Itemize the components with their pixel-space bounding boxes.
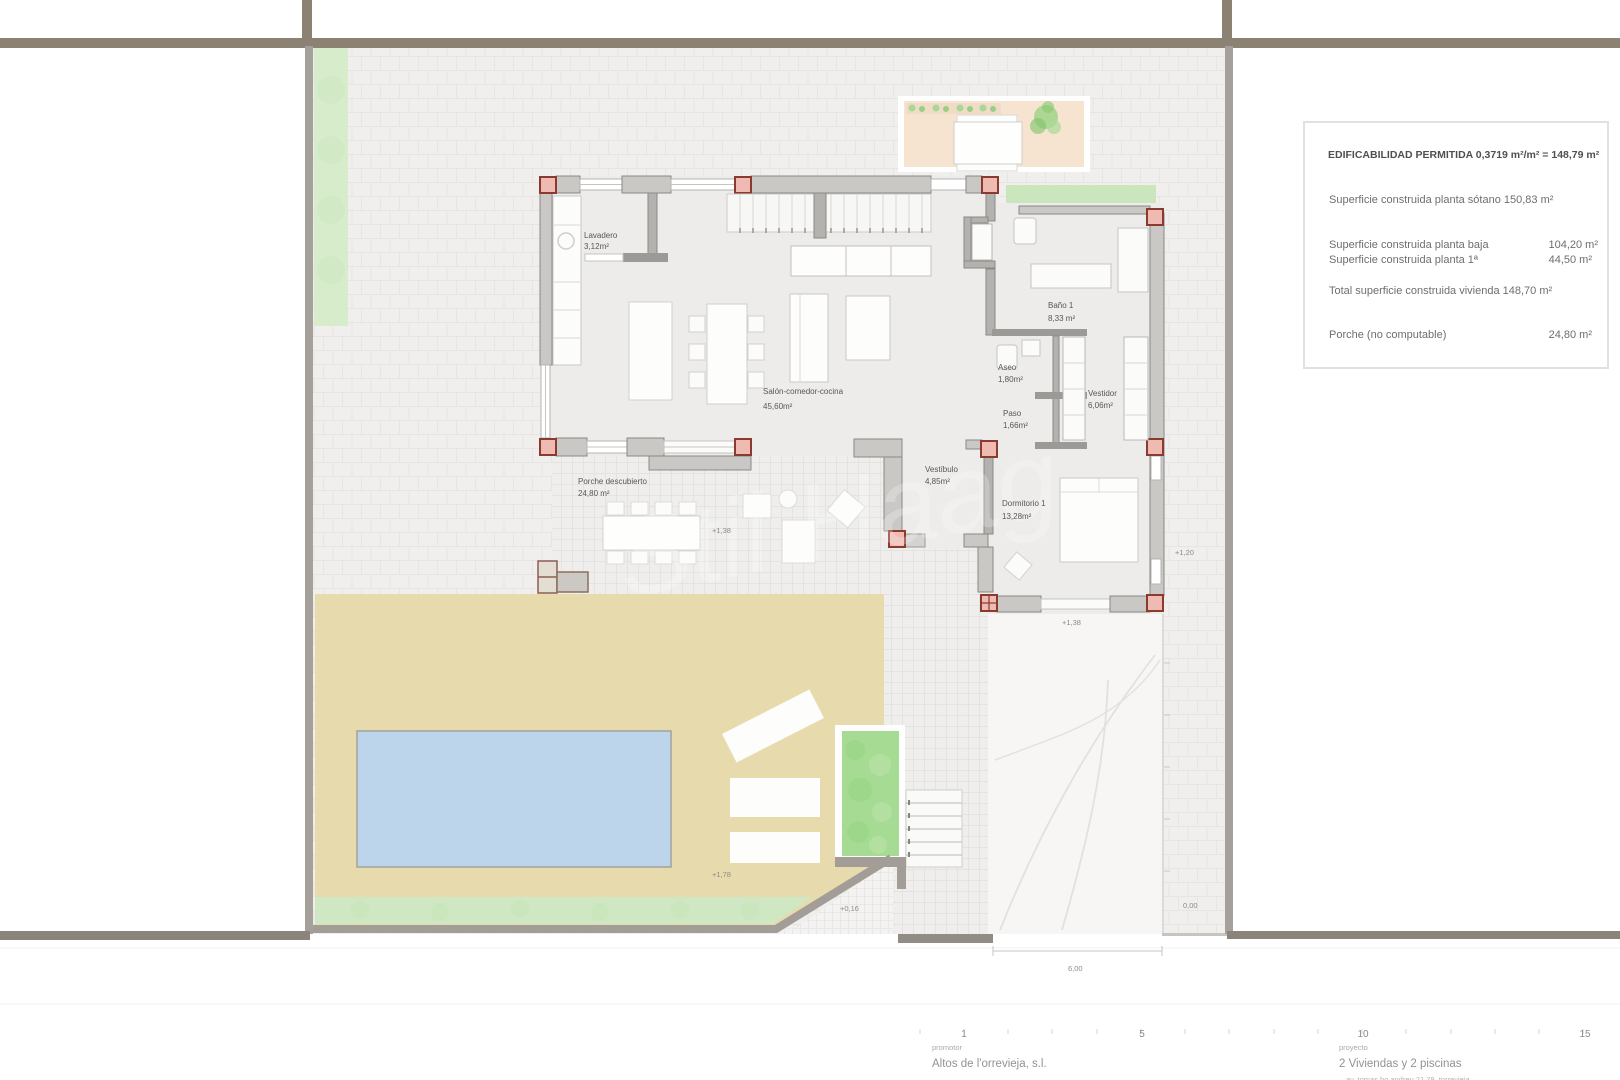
svg-text:24,80 m²: 24,80 m² (578, 489, 610, 498)
svg-text:Porche descubierto: Porche descubierto (578, 477, 647, 486)
svg-text:Salón-comedor-cocina: Salón-comedor-cocina (763, 387, 844, 396)
svg-text:8,33 m²: 8,33 m² (1048, 314, 1075, 323)
svg-text:6,00: 6,00 (1068, 964, 1083, 973)
svg-text:6,06m²: 6,06m² (1088, 401, 1113, 410)
svg-text:15: 15 (1579, 1029, 1591, 1040)
svg-text:45,60m²: 45,60m² (763, 402, 793, 411)
svg-text:1: 1 (961, 1029, 967, 1040)
svg-text:+1,38: +1,38 (1062, 618, 1081, 627)
svg-text:+1,78: +1,78 (712, 870, 731, 879)
svg-text:1,66m²: 1,66m² (1003, 421, 1028, 430)
svg-text:104,20 m²: 104,20 m² (1548, 239, 1598, 251)
svg-text:Vestíbulo: Vestíbulo (925, 465, 958, 474)
svg-text:Superficie construida planta b: Superficie construida planta baja (1329, 239, 1489, 251)
svg-text:Vestidor: Vestidor (1088, 389, 1117, 398)
svg-text:5: 5 (1139, 1029, 1145, 1040)
svg-text:+1,20: +1,20 (1175, 548, 1194, 557)
svg-text:Porche (no computable): Porche (no computable) (1329, 329, 1446, 341)
svg-text:promotor: promotor (932, 1043, 963, 1052)
svg-text:10: 10 (1357, 1029, 1369, 1040)
svg-text:24,80 m²: 24,80 m² (1549, 329, 1593, 341)
svg-text:Baño 1: Baño 1 (1048, 301, 1074, 310)
svg-text:Altos de l'orrevieja, s.l.: Altos de l'orrevieja, s.l. (932, 1058, 1047, 1070)
svg-text:1,80m²: 1,80m² (998, 375, 1023, 384)
svg-text:proyecto: proyecto (1339, 1043, 1368, 1052)
svg-text:Total superficie construida vi: Total superficie construida vivienda 148… (1329, 285, 1553, 297)
svg-text:Dormitorio 1: Dormitorio 1 (1002, 499, 1046, 508)
svg-text:4,85m²: 4,85m² (925, 477, 950, 486)
svg-text:Superficie construida planta s: Superficie construida planta sótano 150,… (1329, 194, 1554, 206)
svg-text:+0,16: +0,16 (840, 904, 859, 913)
svg-text:3,12m²: 3,12m² (584, 242, 609, 251)
svg-text:av. tomas bo andreu 21,78, tor: av. tomas bo andreu 21,78, torrevieja (1346, 1075, 1471, 1080)
svg-text:13,28m²: 13,28m² (1002, 512, 1032, 521)
svg-text:+1,38: +1,38 (712, 526, 731, 535)
svg-text:Lavadero: Lavadero (584, 231, 618, 240)
svg-text:2 Viviendas y 2 piscinas: 2 Viviendas y 2 piscinas (1339, 1058, 1462, 1070)
svg-text:44,50 m²: 44,50 m² (1549, 254, 1593, 266)
svg-text:Superficie construida planta 1: Superficie construida planta 1ª (1329, 254, 1479, 266)
svg-text:Paso: Paso (1003, 409, 1022, 418)
svg-text:Aseo: Aseo (998, 363, 1017, 372)
svg-text:0,00: 0,00 (1183, 901, 1198, 910)
svg-text:EDIFICABILIDAD PERMITIDA 0,371: EDIFICABILIDAD PERMITIDA 0,3719 m²/m² = … (1328, 149, 1600, 161)
